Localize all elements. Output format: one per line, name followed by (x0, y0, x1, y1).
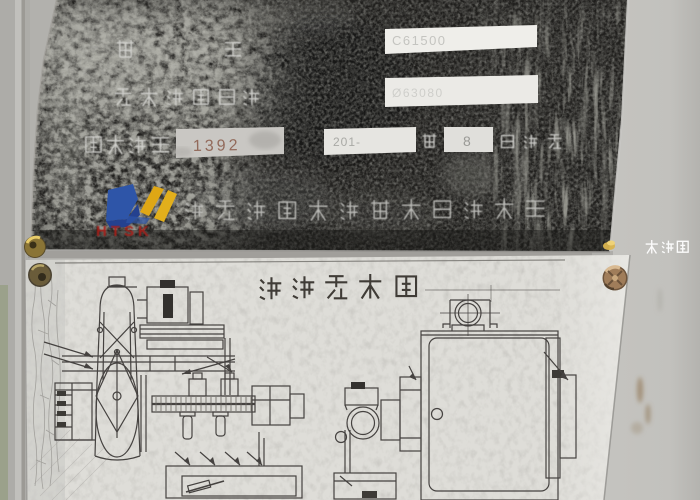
svg-text:8: 8 (463, 133, 471, 149)
svg-text:C61500: C61500 (392, 33, 447, 48)
svg-text:Ø63080: Ø63080 (392, 86, 444, 100)
svg-text:HTSK: HTSK (96, 223, 153, 240)
svg-text:1392: 1392 (193, 137, 241, 155)
svg-text:201-: 201- (333, 135, 361, 149)
